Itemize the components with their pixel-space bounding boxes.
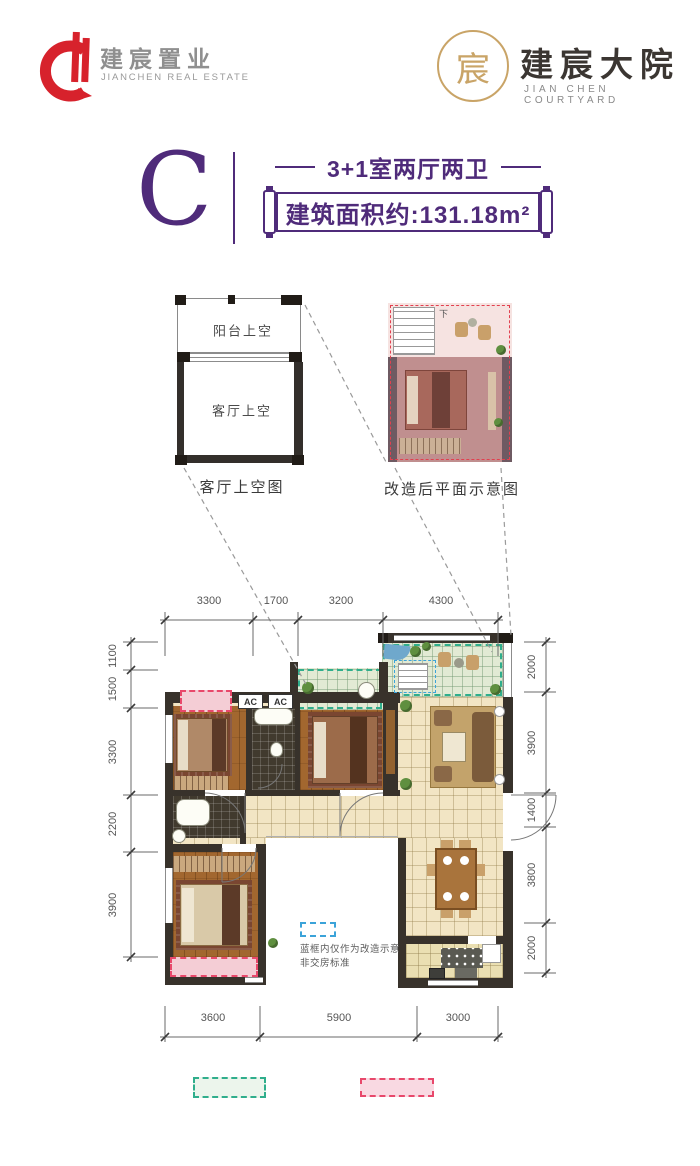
- basin: [358, 682, 375, 699]
- dim-right-2: 3900: [526, 731, 538, 755]
- bed-pillows: [182, 888, 194, 942]
- dim-left-2: 1500: [107, 677, 119, 701]
- developer-logo-icon: [34, 26, 94, 106]
- wall: [240, 796, 246, 846]
- wall-block: [292, 455, 304, 465]
- wall: [246, 700, 252, 790]
- ac-unit-left: AC: [238, 694, 263, 709]
- tv-console: [386, 710, 395, 774]
- chair: [459, 840, 471, 848]
- chair: [477, 864, 485, 876]
- plan-note-line2: 非交房标准: [300, 955, 350, 969]
- dining-table: [435, 848, 477, 910]
- balcony-pink: [170, 957, 258, 977]
- ac-platform-pink: [180, 690, 232, 712]
- unit-layout-row: 3+1室两厅两卫: [262, 152, 554, 182]
- plant-icon: [268, 938, 278, 948]
- plate: [460, 856, 469, 865]
- unit-letter: C: [136, 140, 213, 240]
- dim-left-4: 2200: [107, 812, 119, 836]
- banner-scroll-left-cap-bottom: [266, 233, 273, 238]
- wall-block: [175, 455, 187, 465]
- layout-dash-right: [501, 166, 541, 169]
- chair: [459, 910, 471, 918]
- table: [454, 658, 464, 668]
- wall-block: [281, 295, 302, 305]
- void-boundary-line: [266, 836, 398, 837]
- reno-bed-runner: [432, 372, 450, 428]
- dim-top-4: 4300: [429, 595, 453, 607]
- reno-stair-down-label: 下: [439, 307, 448, 320]
- wall: [295, 700, 300, 790]
- plant-icon: [496, 345, 506, 355]
- bed-runner: [212, 719, 226, 771]
- dim-top-2: 1700: [264, 595, 288, 607]
- chair: [441, 840, 453, 848]
- banner-scroll-right-cap-top: [543, 186, 550, 191]
- washer: [172, 829, 186, 843]
- ac-label: AC: [274, 697, 287, 707]
- wall-block: [289, 352, 302, 362]
- plant-icon: [410, 646, 421, 657]
- bathtub: [176, 799, 210, 826]
- banner-scroll-right-cap-bottom: [543, 233, 550, 238]
- dim-right-1: 2000: [526, 655, 538, 679]
- plant-icon: [302, 682, 314, 694]
- door-opening: [205, 790, 245, 796]
- ac-label: AC: [244, 697, 257, 707]
- wall: [379, 662, 388, 696]
- toilet: [270, 742, 283, 757]
- wall: [503, 851, 513, 978]
- table: [468, 318, 477, 327]
- plate: [443, 856, 452, 865]
- wardrobe: [174, 776, 228, 790]
- unit-layout-text: 3+1室两厅两卫: [327, 150, 489, 184]
- reno-bed-pillows: [407, 376, 418, 424]
- plan-note-line1: 蓝框内仅作为改造示意: [300, 941, 400, 955]
- window: [428, 980, 478, 986]
- floorplan-page: 建宸置业 JIANCHEN REAL ESTATE 宸 建宸大院 JIAN CH…: [0, 0, 700, 1166]
- door-opening: [468, 936, 496, 944]
- dim-right-5: 2000: [526, 936, 538, 960]
- kitchen-counter: [455, 968, 477, 978]
- dim-top-3: 3200: [329, 595, 353, 607]
- door-opening: [222, 844, 256, 852]
- kitchen-island: [441, 948, 483, 968]
- project-name-cn: 建宸大院: [520, 38, 680, 86]
- side-table: [494, 706, 505, 717]
- plant-icon: [422, 642, 431, 651]
- developer-name-en: JIANCHEN REAL ESTATE: [101, 72, 250, 83]
- plant-icon: [494, 418, 503, 427]
- window: [245, 977, 263, 983]
- wall: [258, 844, 266, 975]
- wall: [398, 838, 406, 978]
- layout-dash-left: [275, 166, 315, 169]
- dim-left-5: 3900: [107, 893, 119, 917]
- reno-diagram-caption: 改造后平面示意图: [384, 478, 520, 499]
- unit-area-text: 建筑面积约:131.18m²: [276, 192, 540, 232]
- bed-runner: [350, 717, 367, 783]
- void-diagram-caption: 客厅上空图: [199, 476, 284, 497]
- banner-scroll-left: [263, 190, 276, 234]
- wardrobe: [173, 856, 255, 872]
- wall-block: [175, 295, 186, 305]
- void-balcony-label: 阳台上空: [213, 321, 273, 340]
- note-blue-swatch: [300, 922, 336, 937]
- side-table: [494, 774, 505, 785]
- dim-bottom-3: 3000: [446, 1012, 470, 1024]
- chair: [438, 652, 451, 667]
- dim-right-4: 3800: [526, 863, 538, 887]
- chair: [427, 864, 435, 876]
- door-opening: [340, 790, 383, 796]
- legend-pink-swatch: [360, 1078, 434, 1097]
- wall-block: [499, 633, 513, 643]
- plate: [443, 892, 452, 901]
- ac-unit-right: AC: [268, 694, 293, 709]
- project-seal: 宸: [437, 30, 509, 102]
- title-divider: [233, 152, 235, 244]
- wall-block: [177, 352, 190, 362]
- project-name-en: JIAN CHEN COURTYARD: [524, 84, 700, 106]
- chair: [478, 325, 491, 340]
- legend-green-swatch: [193, 1077, 266, 1098]
- armchair: [434, 710, 452, 726]
- window: [165, 868, 173, 923]
- chair: [455, 322, 468, 337]
- project-seal-char: 宸: [456, 42, 490, 91]
- bathtub: [254, 708, 293, 725]
- dim-top-1: 3300: [197, 595, 221, 607]
- dim-left-1: 1100: [107, 644, 119, 668]
- bed-runner: [222, 885, 240, 945]
- sofa: [472, 712, 494, 782]
- plant-icon: [400, 778, 412, 790]
- plant-icon: [490, 684, 501, 695]
- banner-scroll-left-cap-top: [266, 186, 273, 191]
- bed-pillows: [314, 722, 326, 778]
- window: [394, 635, 490, 641]
- wall-block: [228, 295, 235, 304]
- banner-scroll-right: [540, 190, 553, 234]
- reno-wardrobe: [399, 438, 461, 454]
- wall-block: [378, 633, 388, 643]
- void-living-label: 客厅上空: [212, 401, 272, 420]
- coffee-table: [442, 732, 466, 762]
- window: [503, 643, 512, 697]
- dim-left-3: 3300: [107, 740, 119, 764]
- chair: [466, 655, 479, 670]
- developer-name-cn: 建宸置业: [100, 40, 216, 74]
- reno-stairs: [393, 307, 435, 355]
- terrace-stairs: [398, 663, 428, 690]
- window: [165, 715, 173, 763]
- plate: [460, 892, 469, 901]
- dim-bottom-1: 3600: [201, 1012, 225, 1024]
- bed-pillows: [178, 720, 188, 770]
- plant-icon: [400, 700, 412, 712]
- stove: [429, 968, 445, 979]
- dim-right-3: 1400: [526, 798, 538, 822]
- armchair: [434, 766, 452, 782]
- chair: [441, 910, 453, 918]
- developer-logo: [34, 26, 94, 106]
- area-banner: 建筑面积约:131.18m²: [263, 186, 553, 238]
- void-window-band: [178, 352, 302, 362]
- fridge: [482, 944, 501, 963]
- dim-bottom-2: 5900: [327, 1012, 351, 1024]
